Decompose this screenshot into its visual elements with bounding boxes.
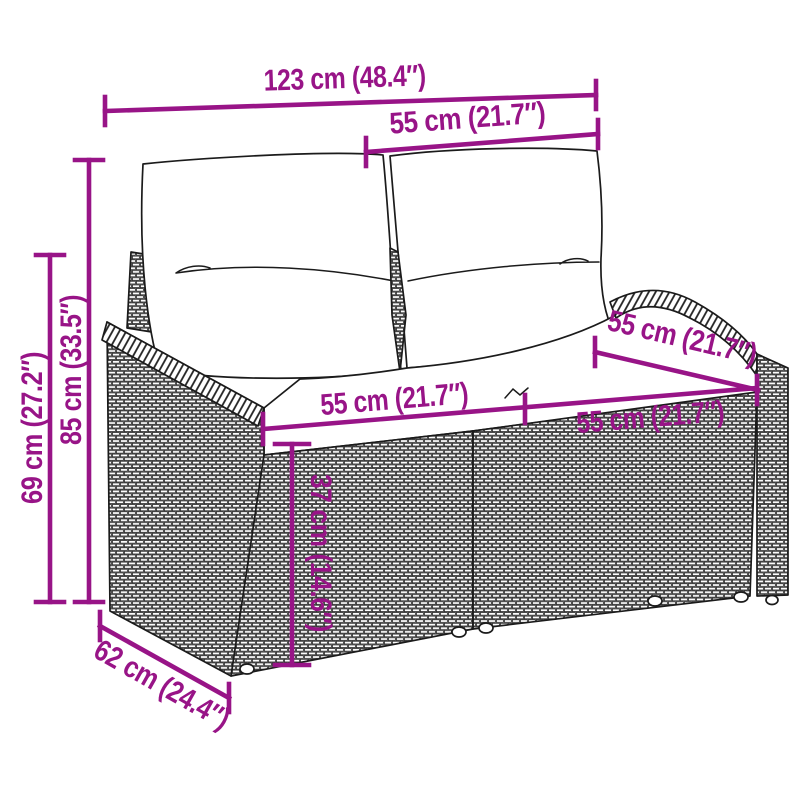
dimension-label-overall-width: 123 cm (48.4″) [263,59,426,97]
dimension-overall-height: 85 cm (33.5″) [55,160,103,602]
back-cushion-left [142,153,401,378]
diagram-canvas: 123 cm (48.4″) 55 cm (21.7″) 85 cm (33.5… [0,0,800,800]
foot [479,623,493,633]
dimension-label-overall-height: 85 cm (33.5″) [55,295,88,445]
dimension-label-seat-height: 37 cm (14.6″) [304,474,337,632]
right-side-panel [757,354,788,596]
foot [766,596,778,605]
dimension-label-armrest-height: 69 cm (27.2″) [16,352,49,504]
product-dimension-diagram: 123 cm (48.4″) 55 cm (21.7″) 85 cm (33.5… [0,0,800,800]
foot [734,592,748,602]
foot [452,627,466,637]
foot [240,664,254,674]
foot [648,596,662,606]
base-front-left [231,431,473,676]
